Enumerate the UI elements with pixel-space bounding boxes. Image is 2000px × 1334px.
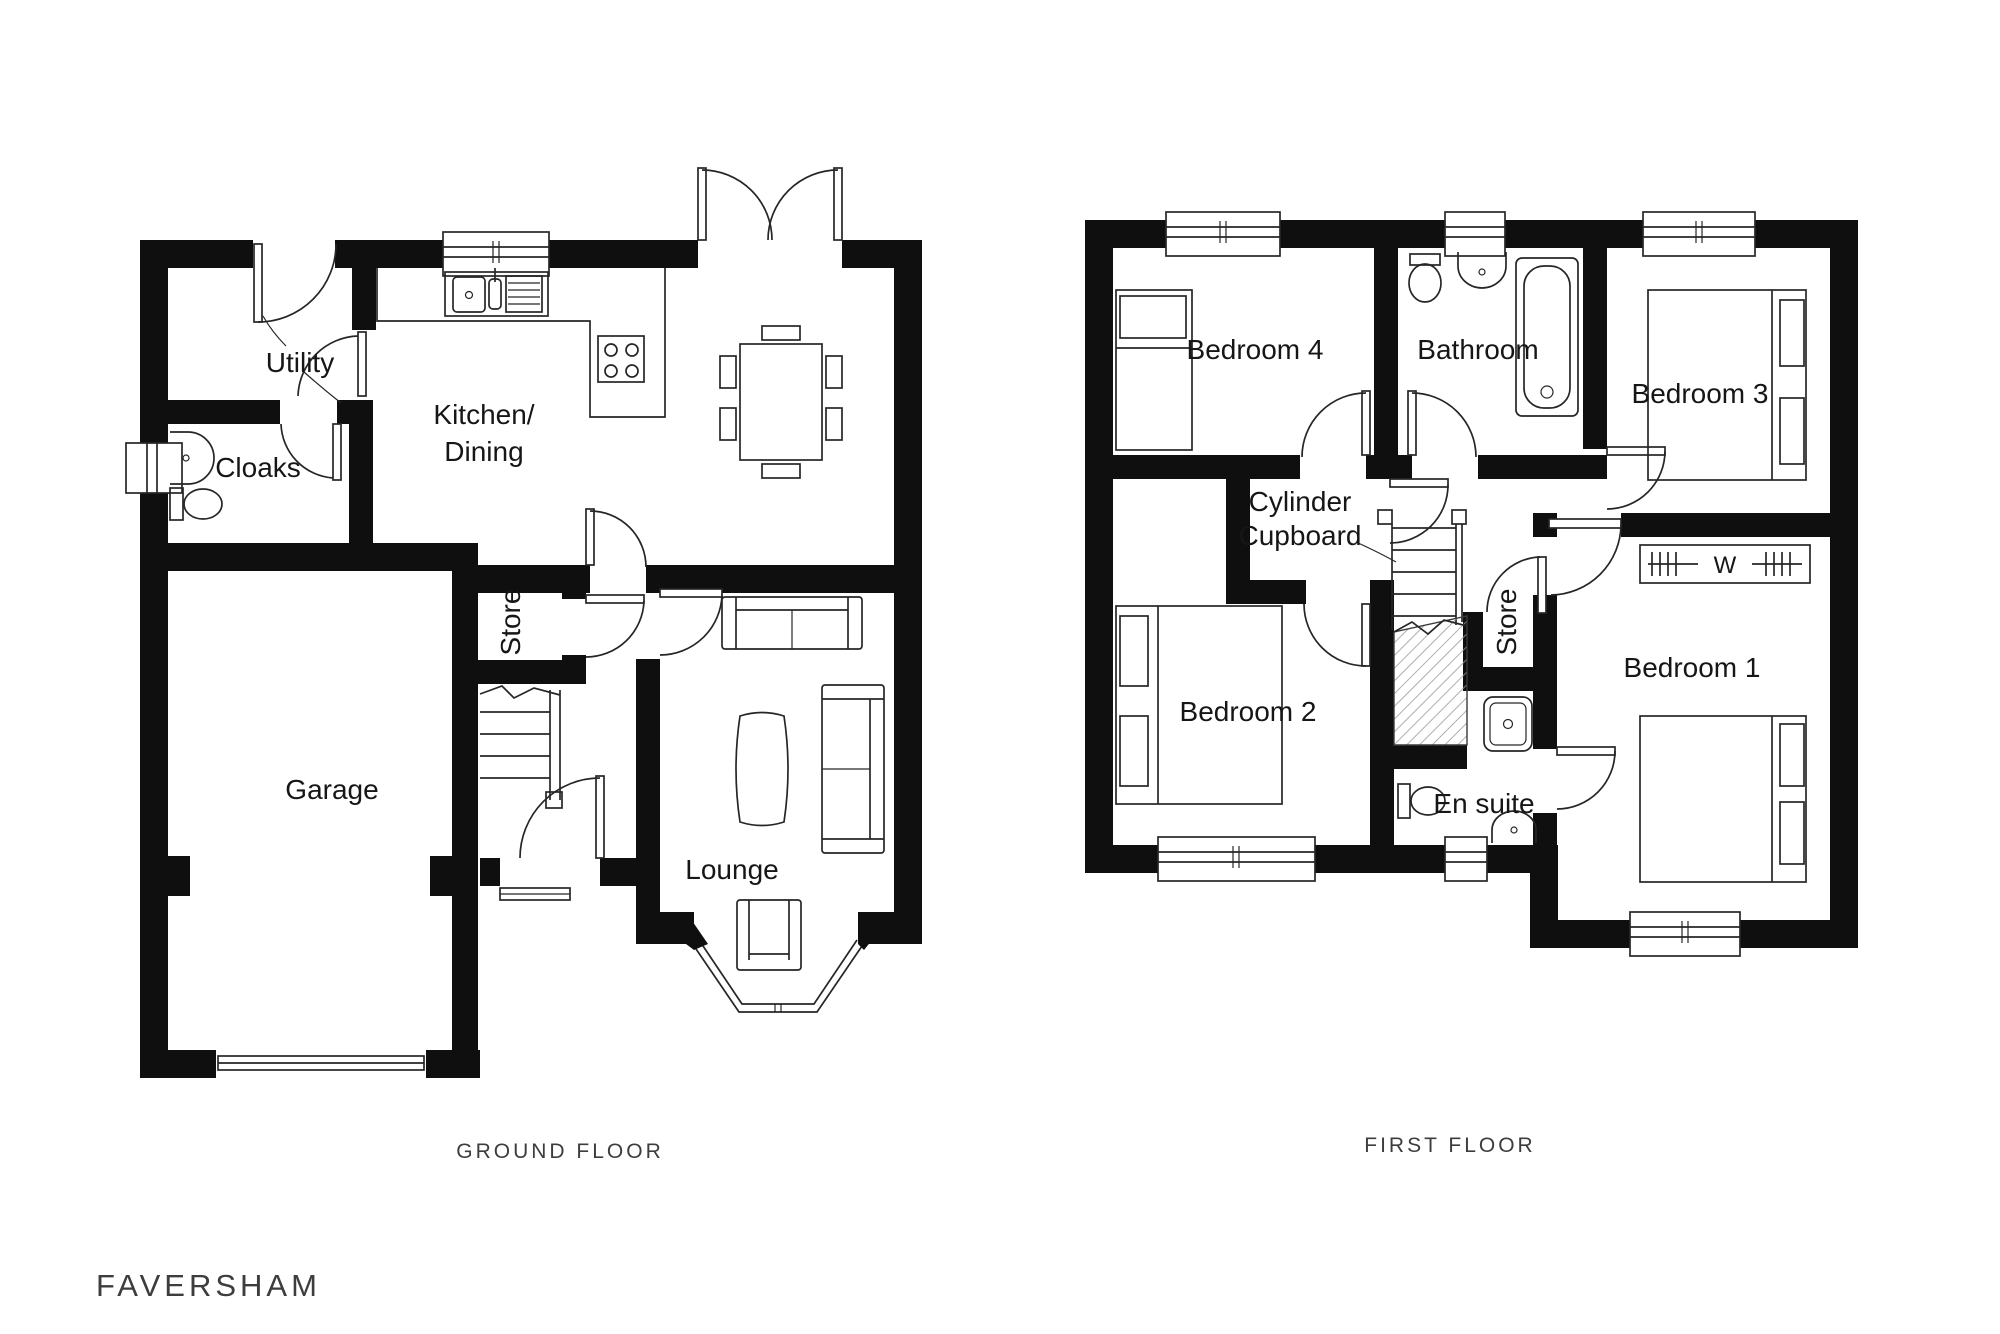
plan-title: FAVERSHAM: [96, 1268, 321, 1303]
ensuite-window: [1445, 837, 1487, 881]
first-floor-leaders: [1356, 542, 1396, 562]
ensuite-door: [1557, 747, 1615, 809]
ground-floor-plan: Utility Cloaks Kitchen/ Dining Store Gar…: [126, 168, 922, 1078]
label-kitchen-line2: Dining: [444, 436, 523, 467]
label-store-ff: Store: [1491, 589, 1522, 656]
label-cylinder-line1: Cylinder: [1249, 486, 1352, 517]
lounge-door: [660, 589, 722, 655]
ground-floor-caption: GROUND FLOOR: [456, 1140, 664, 1163]
bedroom3-door: [1607, 447, 1665, 509]
bedroom1-door: [1549, 519, 1621, 595]
bedroom4-window: [1166, 212, 1280, 256]
label-ensuite: En suite: [1433, 788, 1534, 819]
first-floor-walls: [1085, 220, 1858, 948]
bedroom3-window: [1643, 212, 1755, 256]
bedroom1-window: [1630, 912, 1740, 956]
cloaks-fixtures: [170, 432, 222, 520]
bed-4: [1116, 290, 1192, 450]
label-bedroom1: Bedroom 1: [1624, 652, 1761, 683]
label-bedroom3: Bedroom 3: [1632, 378, 1769, 409]
dining-table: [720, 326, 842, 478]
kitchen-window: [443, 232, 549, 276]
floorplan-sheet: Utility Cloaks Kitchen/ Dining Store Gar…: [0, 0, 2000, 1334]
label-wardrobe: W: [1714, 552, 1737, 579]
armchair-bay: [737, 900, 801, 970]
bay-window: [686, 912, 880, 1012]
label-bathroom: Bathroom: [1417, 334, 1538, 365]
label-lounge: Lounge: [685, 854, 778, 885]
store-door-gf: [586, 595, 644, 657]
floorplan-drawing: Utility Cloaks Kitchen/ Dining Store Gar…: [0, 0, 2000, 1334]
first-floor-doors: [1302, 391, 1665, 809]
ground-floor-walls: [140, 240, 922, 1078]
bedroom2-door: [1304, 604, 1370, 666]
label-kitchen-line1: Kitchen/: [433, 399, 534, 430]
label-bedroom2: Bedroom 2: [1180, 696, 1317, 727]
shower: [1484, 697, 1532, 751]
label-bedroom4: Bedroom 4: [1187, 334, 1324, 365]
ground-floor-stairs: [480, 686, 562, 808]
cloaks-window: [126, 443, 182, 493]
label-cylinder-line2: Cupboard: [1239, 520, 1362, 551]
ground-floor-labels: Utility Cloaks Kitchen/ Dining Store Gar…: [215, 347, 779, 885]
bedroom4-door: [1302, 391, 1370, 457]
label-store-gf: Store: [495, 589, 526, 656]
first-floor-plan: W Bedroom 4 Bathroom Bedroom 3 Cylinder …: [1085, 212, 1858, 956]
kitchen-hall-door: [586, 509, 646, 567]
porch-step: [500, 888, 570, 900]
bathroom-door: [1408, 391, 1476, 457]
french-doors: [698, 168, 842, 240]
garage-door: [218, 1056, 424, 1070]
label-utility: Utility: [266, 347, 334, 378]
utility-back-door: [254, 244, 336, 322]
first-floor-labels: Bedroom 4 Bathroom Bedroom 3 Cylinder Cu…: [1180, 334, 1769, 819]
wardrobe: W: [1640, 545, 1810, 583]
bed-1: [1640, 716, 1806, 882]
coffee-table: [736, 713, 788, 826]
bathroom-window: [1445, 212, 1505, 256]
sofa-top: [722, 597, 862, 649]
front-door: [520, 776, 604, 858]
first-floor-caption: FIRST FLOOR: [1364, 1134, 1535, 1157]
hob: [598, 336, 644, 382]
label-garage: Garage: [285, 774, 378, 805]
bedroom2-window: [1158, 837, 1315, 881]
label-cloaks: Cloaks: [215, 452, 301, 483]
cylinder-cupboard-door: [1390, 479, 1448, 543]
sofa-right: [822, 685, 884, 853]
